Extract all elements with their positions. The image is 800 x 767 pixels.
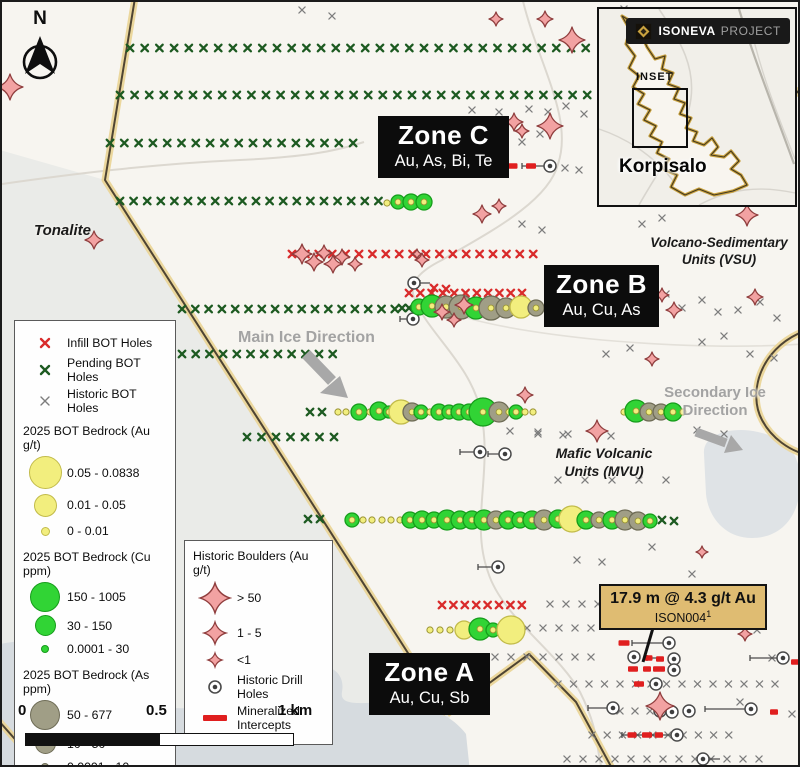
- au-center-dot: [408, 199, 414, 205]
- au-sample-dot: [360, 517, 366, 523]
- cu-circle-small: [41, 645, 49, 653]
- as-circle-large: [30, 700, 60, 730]
- region-label: Korpisalo: [619, 156, 707, 178]
- legend-boulder-class-0: > 50: [193, 580, 326, 616]
- label-tonalite: Tonalite: [34, 222, 91, 241]
- au-center-dot: [356, 409, 362, 415]
- au-center-dot: [647, 518, 653, 524]
- au-sample-dot: [530, 409, 536, 415]
- au-sample-dot: [388, 517, 394, 523]
- au-center-dot: [419, 517, 425, 523]
- au-sample-dot: [447, 627, 453, 633]
- au-center-dot: [481, 517, 487, 523]
- historic-drill-hole-dot: [412, 281, 417, 286]
- north-label: N: [12, 8, 68, 30]
- mineralized-intercept: [770, 709, 778, 714]
- historic-drill-hole-dot: [478, 450, 483, 455]
- historic-drill-hole-dot: [632, 655, 637, 660]
- au-circle-small: [41, 527, 50, 536]
- mineralized-intercept: [509, 163, 518, 168]
- historic-drill-hole-dot: [670, 710, 675, 715]
- au-sample-dot: [522, 409, 528, 415]
- legend-section-au-title: 2025 BOT Bedrock (Au g/t): [23, 424, 169, 452]
- mineralized-intercept: [628, 666, 638, 671]
- as-circle-small: [41, 763, 49, 767]
- historic-drill-hole-dot: [667, 641, 672, 646]
- legend-au-class-2: 0 - 0.01: [23, 521, 169, 541]
- au-center-dot: [480, 409, 486, 415]
- au-center-dot: [431, 517, 437, 523]
- au-center-dot: [421, 199, 427, 205]
- hole-id: ISON004: [655, 611, 706, 625]
- mineralized-intercept: [619, 640, 630, 645]
- scale-tick-mid: 0.5: [146, 702, 167, 719]
- au-center-dot: [609, 517, 615, 523]
- badge-suffix: PROJECT: [721, 24, 781, 38]
- au-center-dot: [513, 409, 519, 415]
- inset-map: ISONEVA PROJECT INSET Korpisalo: [597, 7, 797, 207]
- mineralized-intercept: [642, 732, 652, 737]
- scale-bar-fill: [26, 734, 160, 745]
- legend-item-infill: Infill BOT Holes: [23, 333, 169, 353]
- au-circle-medium: [34, 494, 57, 517]
- mineralized-intercept: [643, 666, 651, 671]
- au-sample-dot: [379, 517, 385, 523]
- label-secondary-ice-direction: Secondary Ice Direction: [652, 384, 778, 420]
- au-center-dot: [444, 517, 450, 523]
- legend-cu-class-1: 30 - 150: [23, 615, 169, 636]
- historic-drill-hole-dot: [687, 709, 692, 714]
- map-canvas: N Tonalite Volcano-Sedimentary Units (VS…: [0, 0, 800, 767]
- au-center-dot: [533, 305, 539, 311]
- historic-drill-hole-dot: [611, 706, 616, 711]
- historic-drill-hole-dot: [548, 164, 553, 169]
- au-center-dot: [436, 409, 442, 415]
- cu-circle-large: [30, 582, 60, 612]
- pending-x-icon: [23, 364, 67, 376]
- au-center-dot: [541, 517, 547, 523]
- zone-a-label: Zone A Au, Cu, Sb: [369, 653, 490, 715]
- legend-boulder-class-1: 1 - 5: [193, 619, 326, 647]
- au-center-dot: [503, 305, 509, 311]
- au-center-dot: [407, 517, 413, 523]
- legend-cu-class-2: 0.0001 - 30: [23, 639, 169, 659]
- project-logo-icon: [635, 23, 652, 40]
- au-center-dot: [635, 518, 641, 524]
- historic-drill-hole-dot: [672, 668, 677, 673]
- au-center-dot: [395, 199, 401, 205]
- intercept-bar-icon: [203, 715, 227, 721]
- cu-circle-medium: [35, 615, 56, 636]
- historic-drill-hole-dot: [749, 707, 754, 712]
- legend-boulder-class-2: <1: [193, 650, 326, 670]
- legend-item-pending: Pending BOT Holes: [23, 356, 169, 384]
- historic-drill-hole-dot: [672, 657, 677, 662]
- legend-au-class-1: 0.01 - 0.05: [23, 492, 169, 518]
- historic-drill-hole-dot: [496, 565, 501, 570]
- legend-cu-class-0: 150 - 1005: [23, 582, 169, 612]
- historic-drill-hole-dot: [675, 733, 680, 738]
- boulder-star-medium-icon: [193, 620, 237, 646]
- mineralized-intercept: [628, 732, 637, 737]
- historic-drill-hole-dot: [654, 682, 659, 687]
- au-center-dot: [477, 626, 483, 632]
- au-center-dot: [488, 305, 494, 311]
- au-center-dot: [376, 408, 382, 414]
- zone-b-label: Zone B Au, Cu, As: [544, 265, 659, 327]
- au-center-dot: [517, 517, 523, 523]
- legend-au-class-0: 0.05 - 0.0838: [23, 456, 169, 489]
- project-badge: ISONEVA PROJECT: [626, 18, 790, 44]
- drill-hole-icon: [193, 679, 237, 695]
- au-sample-dot: [369, 517, 375, 523]
- legend-section-as-title: 2025 BOT Bedrock (As ppm): [23, 668, 169, 696]
- au-center-dot: [349, 517, 355, 523]
- historic-drill-hole-dot: [503, 452, 508, 457]
- north-arrow: N: [12, 8, 68, 91]
- compass-icon: [12, 30, 68, 86]
- label-main-ice-direction: Main Ice Direction: [238, 328, 375, 347]
- au-sample-dot: [427, 627, 433, 633]
- legend-section-cu-title: 2025 BOT Bedrock (Cu ppm): [23, 550, 169, 578]
- au-center-dot: [596, 517, 602, 523]
- historic-drill-hole-dot: [411, 317, 416, 322]
- label-mvu: Mafic Volcanic Units (MVU): [540, 445, 668, 480]
- mineralized-intercept: [656, 656, 664, 661]
- legend-bedrock: Infill BOT Holes Pending BOT Holes Histo…: [14, 320, 176, 767]
- au-circle-large: [29, 456, 62, 489]
- au-center-dot: [473, 305, 479, 311]
- au-center-dot: [633, 408, 639, 414]
- footnote-mark: 1: [706, 609, 711, 619]
- au-center-dot: [457, 517, 463, 523]
- au-center-dot: [496, 409, 502, 415]
- au-sample-bubble: [497, 616, 525, 644]
- scale-tick-end: 1 km: [278, 702, 312, 719]
- au-sample-dot: [343, 409, 349, 415]
- au-center-dot: [490, 627, 496, 633]
- au-center-dot: [429, 303, 435, 309]
- mineralized-intercept: [634, 681, 644, 686]
- infill-x-icon: [23, 337, 67, 349]
- scale-tick-0: 0: [18, 702, 26, 719]
- mineralized-intercept: [526, 163, 536, 168]
- mineralized-intercept: [653, 666, 665, 671]
- au-center-dot: [583, 517, 589, 523]
- au-center-dot: [493, 517, 499, 523]
- historic-drill-hole-dot: [701, 757, 706, 762]
- legend-drill-holes: Historic Drill Holes: [193, 673, 326, 701]
- inset-extent-box: [632, 88, 688, 148]
- legend-item-historic: Historic BOT Holes: [23, 387, 169, 415]
- historic-x-icon: [23, 395, 67, 407]
- boulder-star-large-icon: [193, 581, 237, 615]
- legend-as-class-2: 0.0001 - 10: [23, 757, 169, 767]
- label-vsu: Volcano-Sedimentary Units (VSU): [630, 235, 800, 269]
- mineralized-intercept: [655, 732, 663, 737]
- legend-historic-title: Historic Boulders (Au g/t): [193, 549, 326, 577]
- au-center-dot: [418, 409, 424, 415]
- au-center-dot: [622, 517, 628, 523]
- scale-bar: [25, 733, 294, 746]
- au-sample-dot: [384, 200, 390, 206]
- au-sample-dot: [335, 409, 341, 415]
- mineralized-intercept: [791, 659, 799, 664]
- intercept-callout: 17.9 m @ 4.3 g/t Au ISON0041: [599, 584, 767, 630]
- boulder-star-small-icon: [193, 651, 237, 669]
- au-sample-dot: [437, 627, 443, 633]
- historic-drill-hole-dot: [781, 656, 786, 661]
- badge-brand: ISONEVA: [658, 24, 715, 38]
- au-center-dot: [505, 517, 511, 523]
- zone-c-label: Zone C Au, As, Bi, Te: [378, 116, 509, 178]
- inset-extent-label: INSET: [636, 71, 673, 83]
